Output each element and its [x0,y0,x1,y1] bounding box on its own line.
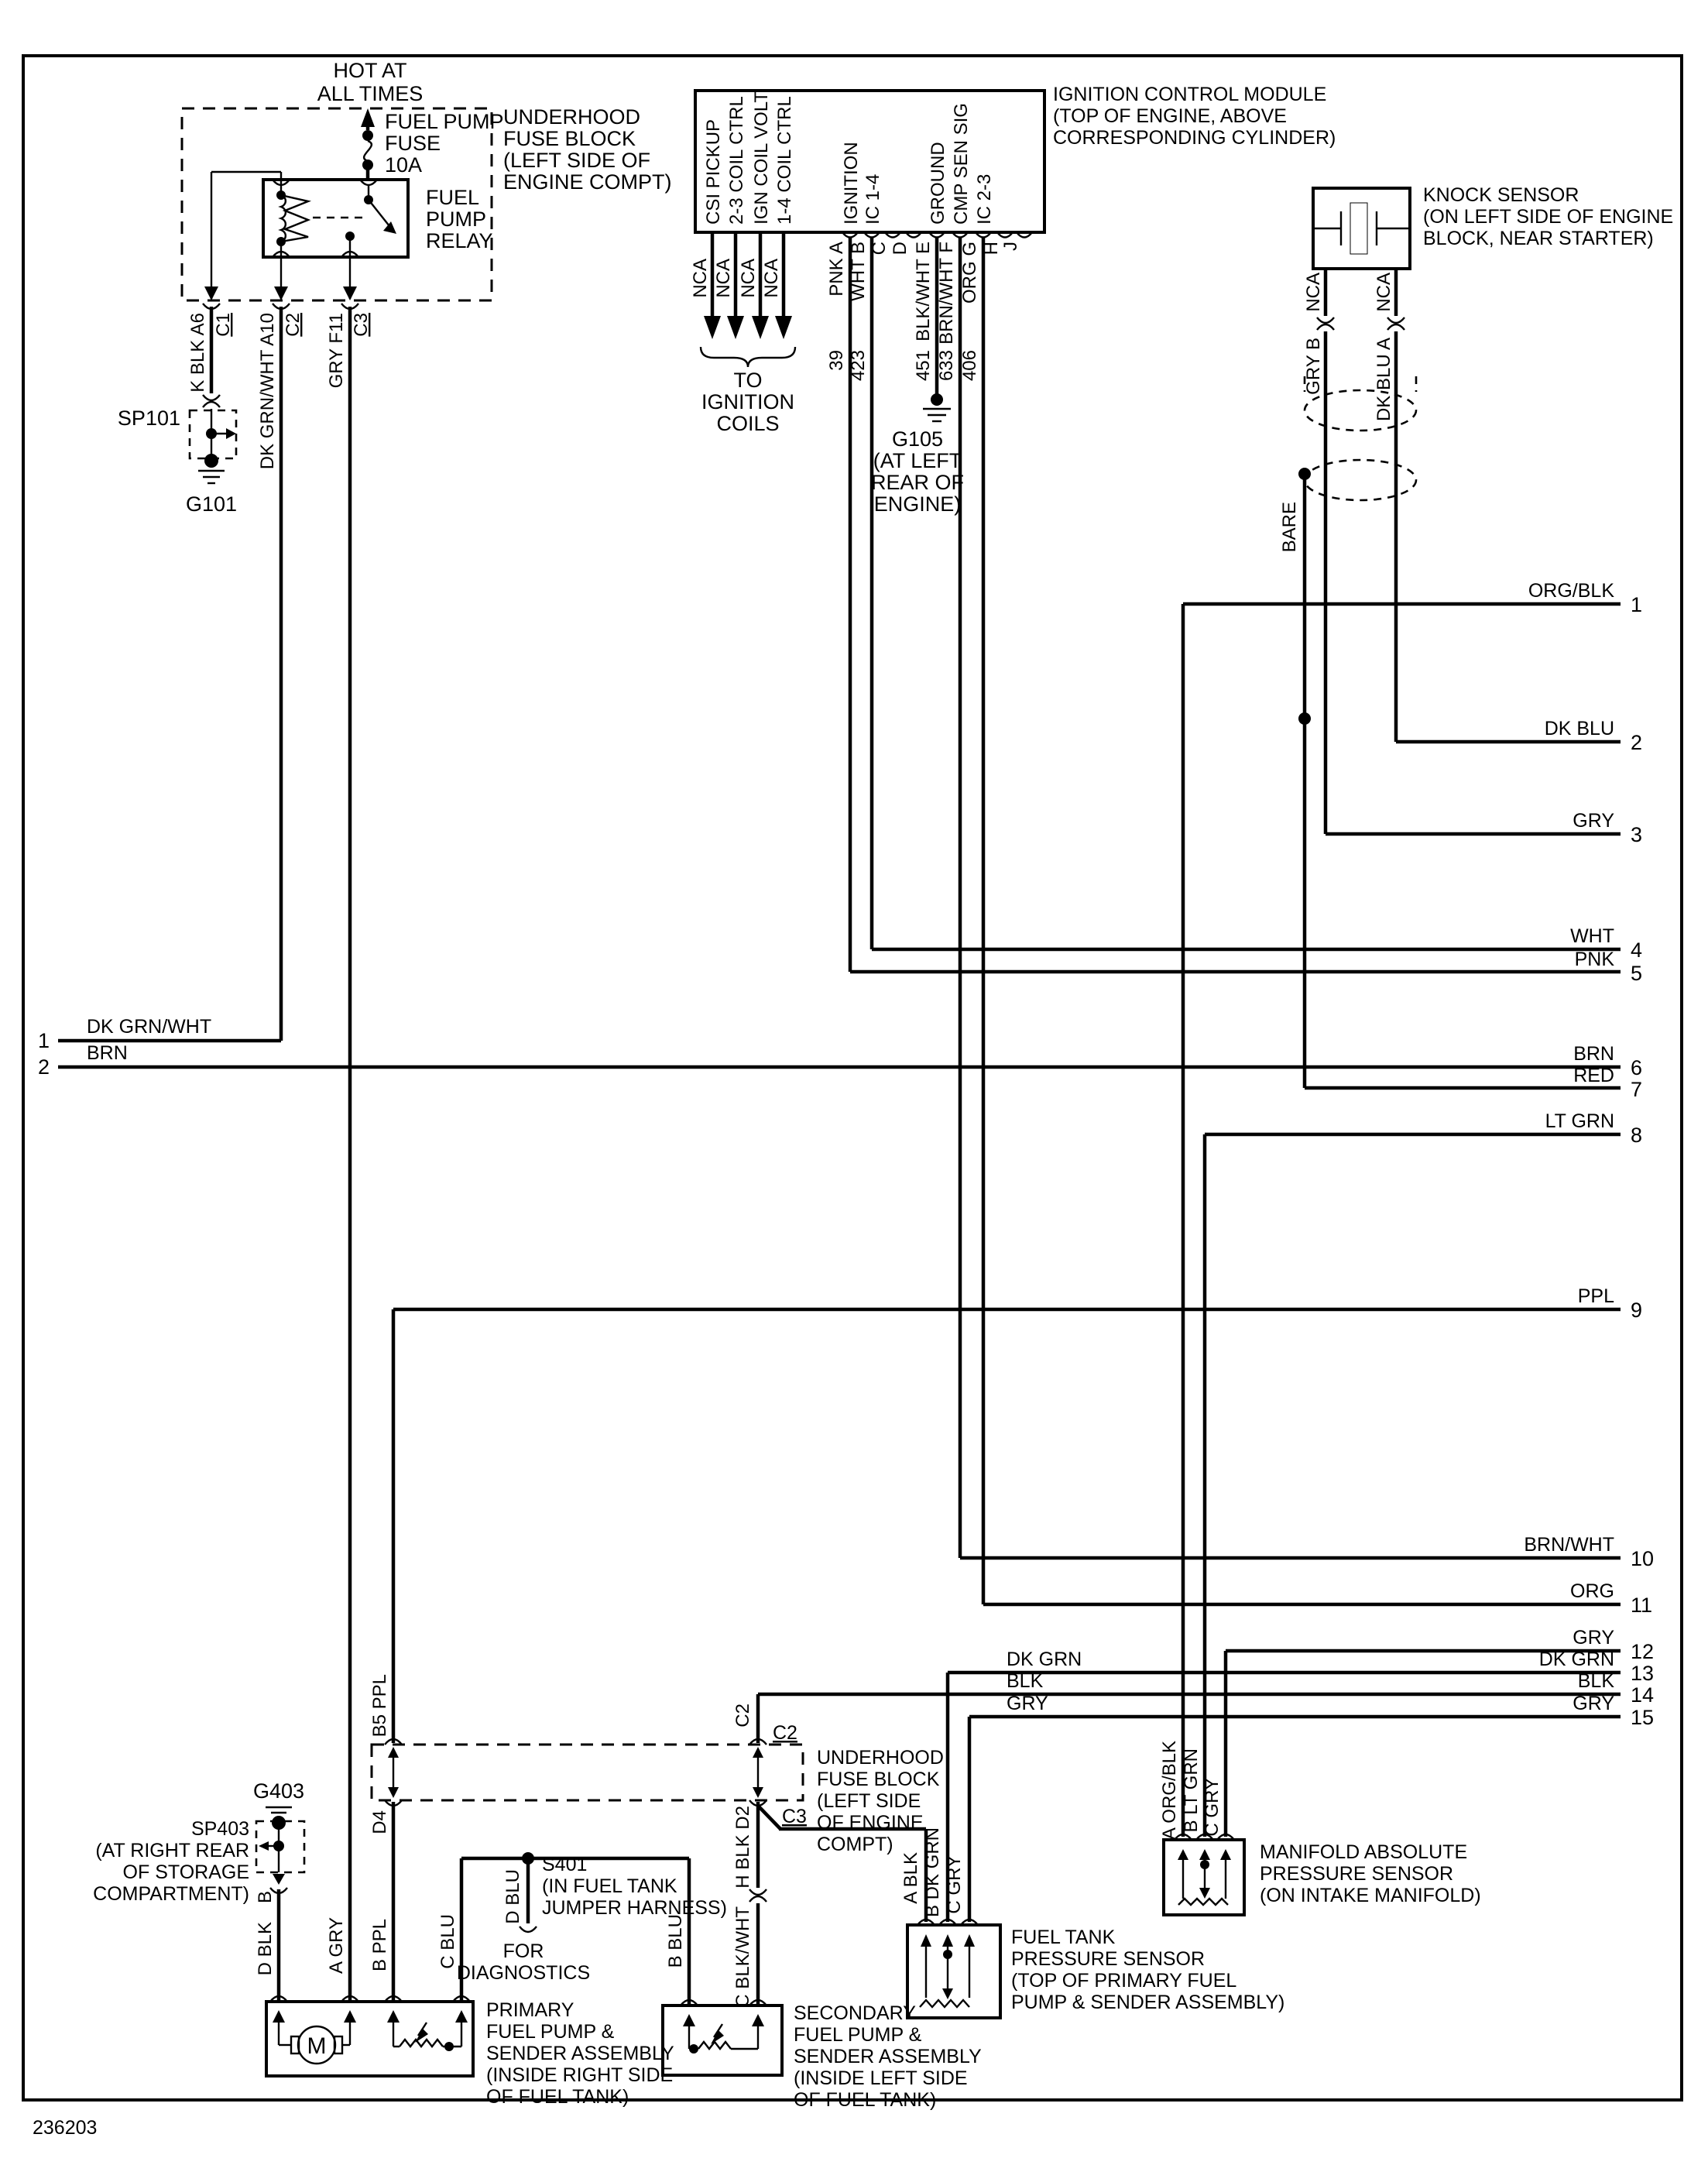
connector-label: C1 [213,313,234,337]
pin-label: D BLK [255,1922,276,1975]
to-coils-label: TO [733,369,762,392]
relay-coil [281,195,286,242]
primary-fuel-pump: M PRIMARY FUEL PUMP & SENDER ASSEMBLY (I… [266,1996,674,2108]
wire-label: DK GRN/WHT A10 [257,313,278,469]
connector-label: C3 [351,313,372,337]
inline-connector [749,1896,767,1902]
relay-switch-arm [369,200,389,226]
relay-label: FUEL [426,186,479,209]
fuse-label: FUEL PUMP [385,110,504,133]
wire-gry-f11: GRY F11 C3 A GRY [326,307,372,2002]
ignition-control-module: IGNITION CONTROL MODULE (TOP OF ENGINE, … [690,84,1336,1604]
pin-label: ORG G [959,242,980,304]
pin-label: BLK/WHT E [913,242,934,341]
exit-label: BRN [87,1042,128,1064]
sender-resistor [393,2023,461,2051]
wire-color: GRY [1573,1627,1614,1649]
to-ignition-coils: NCA NCA NCA NCA TO IGNITION COILS [690,232,795,435]
wire-number: 4 [1631,938,1642,962]
hot-label: HOT AT [333,59,406,82]
primary-pump-label: SENDER ASSEMBLY [486,2043,674,2064]
knock-title: (ON LEFT SIDE OF ENGINE [1423,206,1673,228]
map-label: PRESSURE SENSOR [1260,1863,1453,1885]
nca-label: NCA [1303,273,1324,312]
wire-number: 2 [1631,731,1642,754]
pin-label: A ORG/BLK [1159,1741,1180,1840]
fuse-label: 10A [385,153,422,177]
wire-number: 11 [1631,1594,1652,1617]
pin-label: H BLK D2 [732,1806,753,1889]
nca-label: NCA [690,259,711,298]
g105-label: ENGINE) [874,492,962,516]
primary-pump-label: PRIMARY [486,1999,574,2021]
icm-function: IGNITION [841,142,862,225]
fuse-block-label: FUSE BLOCK [503,127,636,150]
wire-label: GRY B [1303,338,1324,395]
pin-label: D [890,242,911,255]
fuel-tank-pressure-sensor: B DK GRN C GRY FUEL TANK PRESSURE SENSOR… [907,1673,1284,2018]
circuit-number: 633 [936,350,957,381]
wire-color: ORG/BLK [1528,580,1614,602]
wire-color: BRN [1573,1043,1614,1065]
wire-brn: 2 BRN [38,1042,1621,1079]
right-exit-wires: ORG/BLK 1 DK BLU 2 GRY 3 WHT 4 PNK 5 BRN… [393,580,1654,1729]
connector-arc [520,1927,537,1932]
wire-number: 3 [1631,823,1642,846]
underhood-fuse-block-bottom: UNDERHOOD FUSE BLOCK (LEFT SIDE OF ENGIN… [372,1722,944,1855]
icm-function: CMP SEN SIG [951,103,972,225]
s401-label: (IN FUEL TANK [542,1875,677,1897]
wire-color: BRN/WHT [1524,1534,1614,1556]
sp403-label: COMPARTMENT) [93,1883,249,1905]
inline-connector [749,1889,767,1895]
pin-label: BRN/WHT F [936,242,957,345]
wire-color: RED [1573,1065,1614,1086]
nca-label: NCA [738,259,759,298]
connector-c3: C3 [782,1806,807,1827]
pin-label: D BLU [502,1869,523,1924]
wire-number: 10 [1631,1547,1654,1570]
connector-label: C2 [283,313,304,337]
splice-sp101: SP101 [118,407,236,458]
circuit-number: 39 [826,350,847,371]
wire-color: GRY [1573,1693,1614,1714]
inline-connector [203,402,220,407]
wire-color-left: BLK [1007,1670,1044,1692]
icm-function: 2-3 COIL CTRL [726,96,747,225]
secondary-pump-label: SENDER ASSEMBLY [794,2046,982,2067]
pin-label: B DK GRN [922,1827,943,1917]
relay-label: PUMP [426,208,486,231]
splice-s401: S401 (IN FUEL TANK JUMPER HARNESS) D BLU… [437,1852,727,2005]
wire-number: 14 [1631,1683,1654,1707]
wire-color: PPL [1578,1285,1614,1307]
primary-pump-label: FUEL PUMP & [486,2021,615,2043]
icm-title: IGNITION CONTROL MODULE [1053,84,1326,105]
map-label: (ON INTAKE MANIFOLD) [1260,1885,1481,1906]
wire-color-left: DK GRN [1007,1649,1082,1670]
pin-label: A GRY [326,1917,347,1974]
g105-label: REAR OF [871,471,964,494]
nca-label: NCA [1374,273,1394,312]
secondary-pump-label: FUEL PUMP & [794,2024,922,2046]
nca-label: NCA [713,259,734,298]
ftp-label: FUEL TANK [1011,1927,1116,1948]
secondary-pump-label: OF FUEL TANK) [794,2089,936,2111]
g105-label: (AT LEFT [873,449,962,472]
wire-blk-to-g101: K BLK A6 C1 SP101 G101 [118,307,237,516]
pin-label: C BLK/WHT [732,1906,753,2008]
to-coils-label: IGNITION [701,390,794,413]
wire-number: 6 [1631,1056,1642,1079]
wire-color: BLK [1578,1670,1615,1692]
ftp-label: PRESSURE SENSOR [1011,1948,1205,1970]
to-coils-label: COILS [716,412,779,435]
inline-connector [1317,324,1334,330]
wire-color-left: GRY [1007,1693,1048,1714]
icm-function: 1-4 COIL CTRL [774,96,795,225]
relay-label: RELAY [426,229,493,252]
knock-title: BLOCK, NEAR STARTER) [1423,228,1654,249]
motor-label: M [307,2033,327,2059]
exit-number: 2 [38,1055,50,1079]
wire-color: WHT [1570,925,1614,947]
underhood-fuse-block-top: HOT AT ALL TIMES UNDERHOOD FUSE BLOCK (L… [182,59,672,309]
wire-color: LT GRN [1545,1110,1614,1132]
pin-label: B PPL [369,1919,390,1971]
icm-function: IGN COIL VOLT [751,91,772,225]
knock-title: KNOCK SENSOR [1423,184,1579,206]
icm-function: IC 1-4 [863,174,883,225]
hot-label: ALL TIMES [317,82,424,105]
s401-label: JUMPER HARNESS) [542,1897,727,1919]
splice-sp403: G403 SP403 (AT RIGHT REAR OF STORAGE COM… [93,1779,304,2002]
doc-number: 236203 [33,2117,97,2139]
brace [701,347,795,367]
piezo-element [1350,203,1367,254]
wire-color: PNK [1575,949,1615,970]
exit-label: DK GRN/WHT [87,1016,211,1038]
g403-label: G403 [253,1779,304,1803]
wire-number: 8 [1631,1124,1642,1147]
wire-number: 7 [1631,1078,1642,1101]
secondary-pump-label: (INSIDE LEFT SIDE [794,2067,968,2089]
wire-number: 1 [1631,593,1642,616]
icm-function: IC 2-3 [974,174,995,225]
sp403-label: OF STORAGE [123,1861,249,1883]
inline-connector [1387,317,1404,323]
wire-color: GRY [1573,810,1614,832]
fuse-block-label: UNDERHOOD [817,1747,944,1769]
icm-function: CSI PICKUP [703,119,724,225]
fuel-pump-fuse: FUEL PUMP FUSE 10A [362,110,504,180]
pin-label: C GRY [944,1855,965,1914]
inline-connector [1387,324,1404,330]
fuse-block-label: ENGINE COMPT) [503,170,672,194]
bare-label: BARE [1279,502,1300,552]
sp101-label: SP101 [118,407,180,430]
nca-label: NCA [761,259,782,298]
diagnostics-label: DIAGNOSTICS [457,1962,590,1984]
exit-number: 1 [38,1029,50,1052]
icm-function: GROUND [928,142,948,225]
pin-label: PNK A [826,242,847,297]
pin-label: C2 [732,1704,753,1728]
sp403-label: SP403 [191,1818,249,1840]
sp403-label: (AT RIGHT REAR [95,1840,249,1861]
fuel-pump-relay: FUEL PUMP RELAY [263,180,493,257]
circuit-number: 451 [913,350,934,381]
wire-number: 9 [1631,1299,1642,1322]
circuit-number: 406 [959,350,980,381]
s401-label: S401 [542,1854,587,1875]
icm-title: CORRESPONDING CYLINDER) [1053,127,1336,149]
connector-c2: C2 [773,1722,797,1744]
wire-number: 5 [1631,962,1642,985]
wire-label: K BLK A6 [187,313,208,393]
pin-label: D4 [369,1810,390,1834]
wire-color: DK BLU [1545,718,1614,739]
wire-color: ORG [1570,1580,1614,1602]
primary-pump-label: (INSIDE RIGHT SIDE [486,2064,673,2086]
wire-number: 15 [1631,1706,1654,1729]
pin-label: J [1000,242,1021,251]
wire-color: DK GRN [1539,1649,1614,1670]
wire-number: 12 [1631,1640,1654,1663]
fuse-label: FUSE [385,132,441,155]
pin-label: B BLU [665,1914,686,1968]
fuse-block-label: COMPT) [817,1834,893,1855]
diagnostics-label: FOR [503,1940,544,1962]
wiring-diagram: 236203 HOT AT ALL TIMES UNDERHOOD FUSE B… [0,0,1708,2165]
wire-ppl-run: B5 PPL D4 B PPL [369,1309,393,2002]
g105-label: G105 [892,427,943,451]
fuse-block-label: (LEFT SIDE OF [503,149,650,172]
secondary-pump-label: SECONDARY [794,2002,916,2024]
wire-label: GRY F11 [326,313,347,388]
g101-label: G101 [186,492,237,516]
pin-label: B5 PPL [369,1674,390,1737]
ground-g101: G101 [186,454,237,516]
ftp-label: (TOP OF PRIMARY FUEL [1011,1970,1236,1992]
fuse-block-label: (LEFT SIDE [817,1790,921,1812]
fuse-block-label: FUSE BLOCK [817,1769,940,1790]
primary-pump-label: OF FUEL TANK) [486,2086,629,2108]
pin-label: C GRY [1202,1778,1223,1837]
map-label: MANIFOLD ABSOLUTE [1260,1841,1467,1863]
pin-label: A BLK [900,1852,921,1904]
wire-number: 13 [1631,1662,1654,1685]
inline-connector [1317,317,1334,323]
wire-label: DK BLU A [1374,338,1394,421]
inline-connector [203,395,220,400]
wire-bare: BARE [1279,468,1311,1088]
ftp-label: PUMP & SENDER ASSEMBLY) [1011,1992,1284,2013]
pin-label: C BLU [437,1914,458,1969]
pin-label: B [255,1891,276,1903]
pin-label: B LT GRN [1181,1748,1202,1832]
fuse-block-label: UNDERHOOD [503,105,640,129]
icm-title: (TOP OF ENGINE, ABOVE [1053,105,1287,127]
